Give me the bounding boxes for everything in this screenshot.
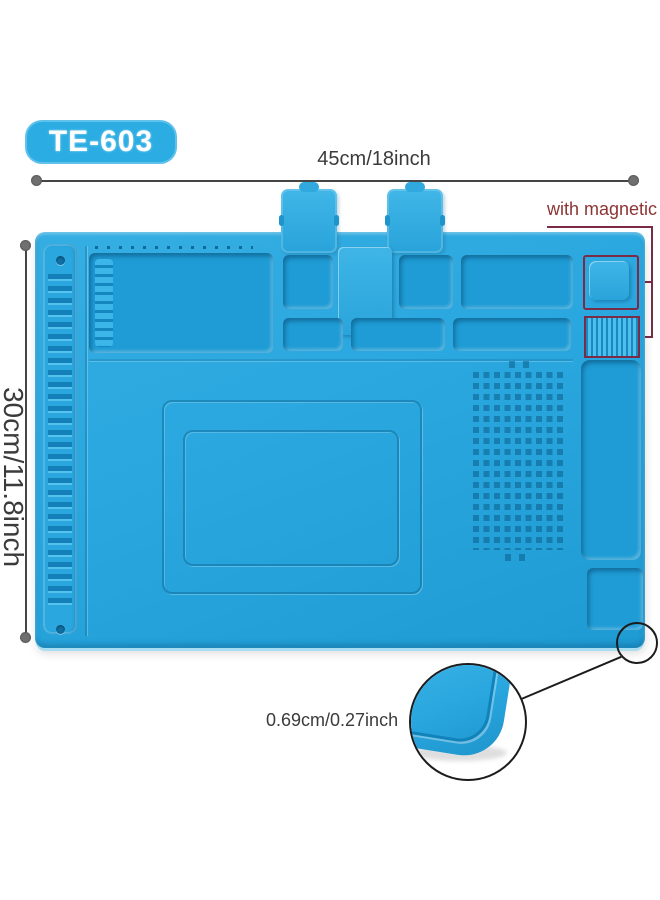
tab-bump [405,182,425,192]
width-dimension-label: 45cm/18inch [274,148,474,171]
tab-notch [440,215,445,226]
mat-dimple-extra-bottom [505,554,525,561]
magnetic-bracket-underline [547,226,653,228]
mat-parts-tray-large [89,253,273,353]
mat-horizontal-groove [89,359,573,361]
tab-notch [279,215,284,226]
mat-corner-rim [409,663,500,746]
width-line-right-dot [628,175,639,186]
mat-corner-hole-top [56,256,65,265]
corner-zoom-source-circle [616,622,658,664]
screw-organizer-notches [95,259,113,347]
magnetic-label: with magnetic [547,199,657,220]
tab-notch [334,215,339,226]
mat-parts-tray-shallow [453,318,571,351]
mat-dimple-grid [473,372,567,550]
mat-left-slot-strip [43,244,77,634]
corner-zoom-magnified-circle [409,663,527,781]
mat-right-small-tray [587,568,643,630]
slot-strip-slots [48,274,72,606]
height-dimension-line [25,246,27,636]
mat-corner-hole-bottom [56,625,65,634]
mat-right-long-tray [581,360,641,560]
magnetic-striped-pad [584,316,640,358]
height-line-bottom-dot [20,632,31,643]
width-dimension-line [36,180,633,182]
mat-parts-tray-shallow [283,318,343,351]
width-line-left-dot [31,175,42,186]
mat-vertical-groove [85,246,87,636]
thickness-dimension-label: 0.69cm/0.27inch [266,710,398,731]
tab-bump [299,182,319,192]
mat-dimple-extra-top [509,361,529,368]
mat-hanging-tab-right [387,189,443,253]
mat-parts-tray [399,255,453,309]
height-line-top-dot [20,240,31,251]
mat-parts-tray [283,255,333,309]
product-image: TE-603 45cm/18inch 30cm/11.8inch with ma… [0,0,660,900]
mat-screw-hole-row [95,246,253,249]
tab-notch [385,215,390,226]
mat-corner-closeup [409,663,515,761]
mat-parts-tray-wide [461,255,573,309]
corner-zoom-connector-line [519,656,622,701]
mat-parts-tray-shallow [351,318,445,351]
mat-work-area-inner-outline [183,430,399,566]
mat-hanging-tab-left [281,189,337,253]
magnetic-square-outline [583,255,639,310]
product-model-badge: TE-603 [25,120,177,164]
repair-mat [35,232,645,648]
